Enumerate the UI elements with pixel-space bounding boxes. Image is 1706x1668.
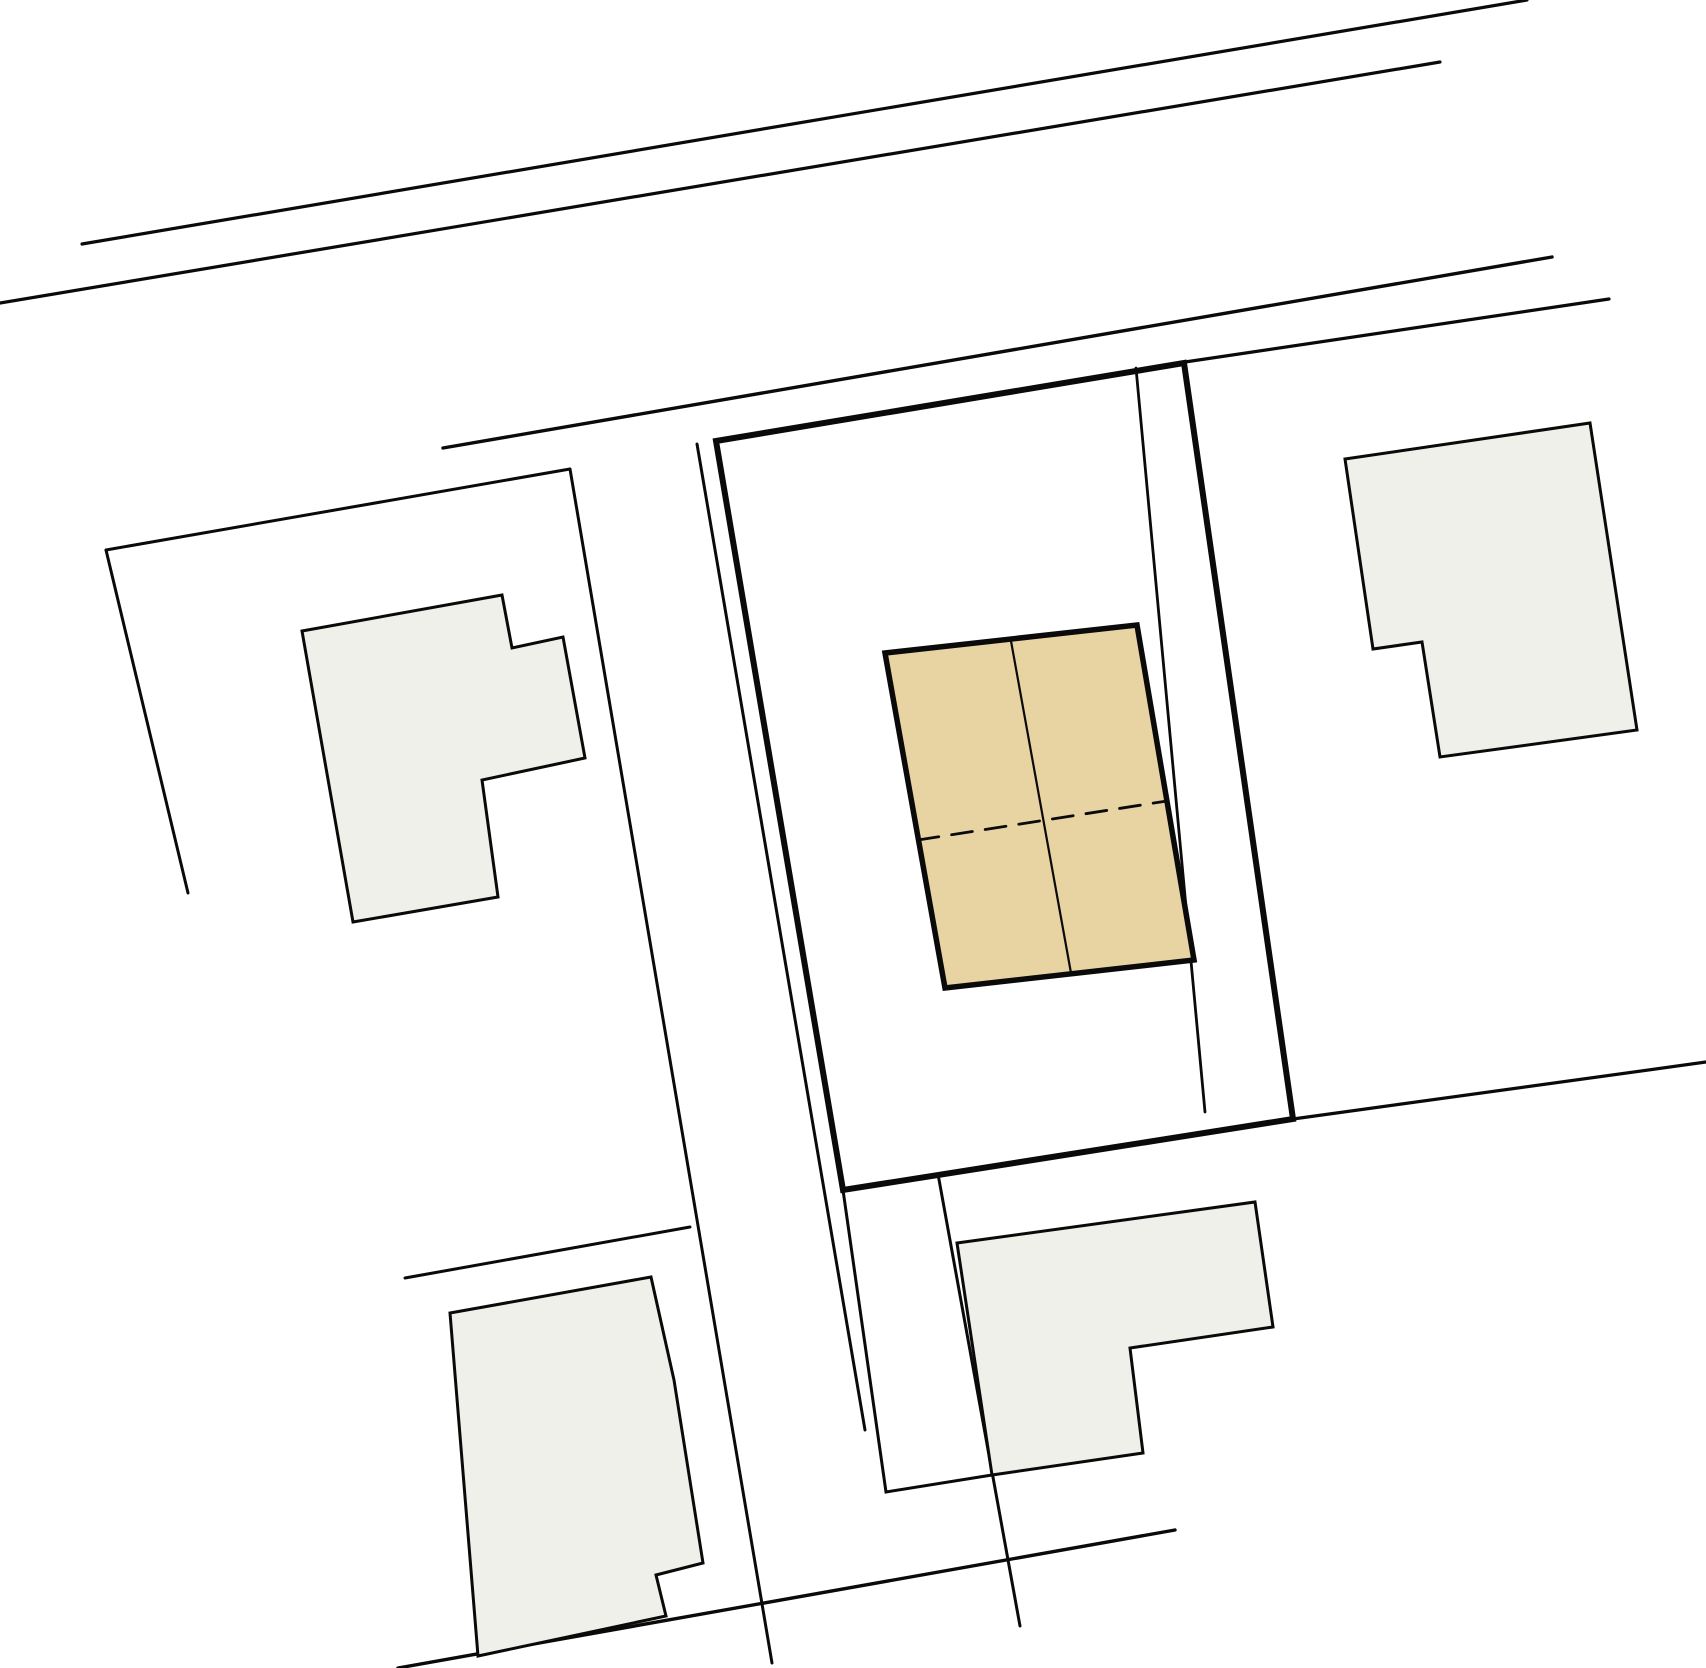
road-line-lower — [0, 62, 1440, 303]
boundary-vertical-driveway — [697, 444, 865, 1430]
site-plan — [0, 0, 1706, 1668]
bottomleft-parcel-north-boundary — [405, 1227, 690, 1278]
subject-building — [885, 625, 1194, 988]
road-line-upper — [82, 0, 1527, 244]
building-southwest — [450, 1277, 703, 1656]
street-edge-north — [443, 257, 1552, 448]
boundary-southeast — [1293, 1062, 1706, 1119]
building-northeast — [1345, 423, 1637, 757]
building-south — [957, 1202, 1273, 1475]
building-northwest — [302, 595, 585, 922]
left-parcel-north-boundary — [106, 469, 570, 550]
site-plan-page — [0, 0, 1706, 1668]
left-parcel-west-boundary — [106, 550, 188, 893]
